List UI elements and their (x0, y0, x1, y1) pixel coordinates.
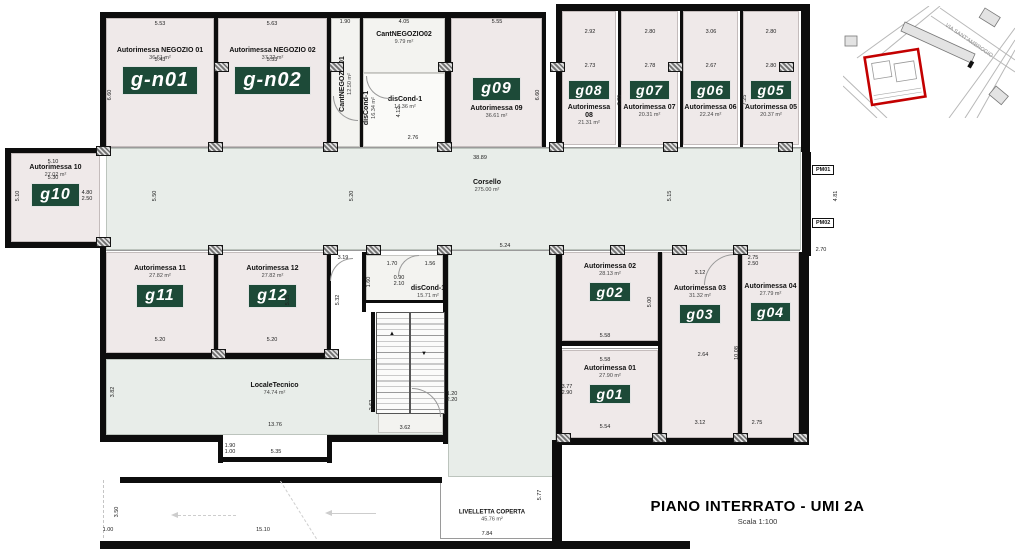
column-marker (663, 142, 678, 152)
dimension-label: 1.70 (387, 261, 398, 267)
room-area: 27.90 m² (599, 373, 621, 379)
column-marker (779, 62, 794, 72)
room-g09: g09 Autorimessa 09 36.61 m² (451, 18, 542, 147)
dimension-label: 5.35 (271, 449, 282, 455)
room-tag-g10: g10 (31, 183, 80, 207)
dimension-label: 1.00 (103, 527, 114, 533)
dimension-label: 5.58 (600, 333, 611, 339)
wall (801, 4, 810, 152)
room-g04: Autorimessa 04 27.79 m² g04 (742, 252, 799, 438)
dimension-label: 2.67 (706, 63, 717, 69)
column-marker (214, 62, 229, 72)
pm01-label: PM01 (812, 165, 834, 175)
wall (556, 4, 562, 150)
column-marker (437, 245, 452, 255)
room-area: 27.82 m² (262, 273, 284, 279)
wall (100, 12, 446, 18)
room-area: 27.79 m² (760, 291, 782, 297)
room-name: Autorimessa 04 (744, 283, 796, 291)
room-gn02: Autorimessa NEGOZIO 02 37.22 m² g-n02 (218, 18, 327, 147)
column-marker (437, 142, 452, 152)
dimension-label: 1.90 (340, 19, 351, 25)
column-marker (672, 245, 687, 255)
column-marker (96, 237, 111, 247)
wall (360, 18, 363, 147)
ramp-arrow-head-icon (171, 512, 178, 518)
wall (446, 12, 546, 18)
dimension-label: 5.50 (152, 191, 158, 202)
dimension-label: 5.77 (537, 490, 543, 501)
dimension-label: 5.53 (267, 57, 278, 63)
room-name: LIVELLETTA COPERTA (459, 510, 525, 517)
dimension-label: 1.60 (366, 277, 372, 288)
column-marker (323, 245, 338, 255)
map-site-outline (865, 49, 926, 105)
room-area: 275.00 m² (473, 187, 501, 193)
livelletta-left-line (440, 480, 441, 538)
room-cant02: CantNEGOZIO02 9.79 m² (363, 18, 445, 73)
ramp-break-line (280, 481, 317, 539)
room-area: 20.31 m² (639, 112, 661, 118)
room-name: Autorimessa 11 (134, 265, 186, 273)
wall (327, 18, 331, 147)
room-name: Autorimessa 05 (745, 104, 797, 112)
dimension-label: 5.20 (349, 191, 355, 202)
dimension-label: 15.10 (256, 527, 270, 533)
wall (5, 242, 105, 248)
room-area: 20.37 m² (760, 112, 782, 118)
drawing-scale: Scala 1:100 (585, 517, 930, 526)
wall (100, 12, 106, 153)
dimension-label: 2.80 (645, 29, 656, 35)
column-marker (668, 62, 683, 72)
room-name: Autorimessa 08 (563, 104, 615, 120)
dimension-label: 2.92 (585, 29, 596, 35)
room-name: CantNEGOZIO02 (376, 31, 432, 39)
dimension-label: 5.32 (335, 295, 341, 306)
wall (445, 12, 451, 147)
dimension-label: 3.62 (400, 425, 411, 431)
column-marker (778, 142, 793, 152)
column-marker (610, 245, 625, 255)
wall (327, 252, 331, 353)
room-tag-g09: g09 (472, 77, 521, 101)
dimension-label: 7.25 (617, 95, 623, 106)
dimension-label: 5.20 (267, 337, 278, 343)
dimension-label: 5.15 (667, 191, 673, 202)
column-marker (324, 349, 339, 359)
room-discond-top-label: disCond-1 14.36 m² (388, 96, 422, 110)
room-area: 74.74 m² (264, 390, 286, 396)
room-name: Autorimessa 12 (246, 265, 298, 273)
room-area: 21.31 m² (578, 120, 600, 126)
room-tag-g02: g02 (589, 282, 630, 302)
dimension-label: 7.84 (482, 531, 493, 537)
room-name: disCond-1 (411, 285, 445, 293)
dimension-label: 2.70 (816, 247, 827, 253)
room-tag-g03: g03 (679, 304, 720, 324)
wall (100, 243, 106, 358)
dimension-label: 2.78 (645, 63, 656, 69)
dimension-label: 6.60 (535, 90, 541, 101)
dimension-label: 3.12 (695, 420, 706, 426)
stair-flight (377, 313, 409, 413)
dimension-label: 3.19 (338, 255, 349, 261)
room-tag-g06: g06 (690, 80, 731, 100)
room-area: 28.13 m² (599, 271, 621, 277)
dimension-label: 4.80 2.50 (82, 190, 93, 202)
dimension-label: 5.63 (267, 21, 278, 27)
room-area: 22.24 m² (700, 112, 722, 118)
dimension-label: 2.80 (766, 63, 777, 69)
stair-direction-up-icon: ▲ (389, 331, 395, 337)
room-name: LocaleTecnico (250, 382, 298, 390)
room-g02: Autorimessa 02 28.13 m² g02 (562, 252, 658, 341)
room-name: Autorimessa NEGOZIO 01 (117, 47, 203, 55)
room-corsello-extension (448, 250, 556, 477)
column-marker (733, 433, 748, 443)
wall (738, 252, 742, 438)
column-marker (793, 433, 808, 443)
wall (214, 252, 218, 353)
room-name: Autorimessa 09 (470, 105, 522, 113)
dimension-label: 5.00 (647, 297, 653, 308)
wall (100, 435, 220, 442)
dimension-label: 2.75 2.50 (748, 255, 759, 267)
wall (799, 252, 809, 444)
dimension-label: 3.77 2.90 (562, 384, 573, 396)
wall (552, 440, 562, 547)
room-tag-g01: g01 (589, 384, 630, 404)
wall (214, 18, 218, 147)
room-tag-g11: g11 (136, 284, 183, 308)
dimension-label: 5.58 (600, 357, 611, 363)
room-discond-mid-label: disCond-1 15.71 m² (411, 285, 445, 299)
dimension-label: 1.90 1.00 (225, 443, 236, 455)
wall (556, 252, 562, 444)
column-marker (550, 62, 565, 72)
room-area: 27.82 m² (149, 273, 171, 279)
dimension-label: 5.20 (155, 337, 166, 343)
g01-top-line (562, 348, 658, 349)
dimension-label: 13.76 (268, 422, 282, 428)
room-area: 36.61 m² (486, 113, 508, 119)
column-marker (556, 433, 571, 443)
dimension-label: 2.75 (752, 420, 763, 426)
room-name: Autorimessa 07 (623, 104, 675, 112)
room-tag-gn02: g-n02 (234, 66, 310, 95)
column-marker (438, 62, 453, 72)
room-area: 45.76 m² (459, 516, 525, 522)
column-marker (208, 142, 223, 152)
dimension-label: 5.54 (600, 424, 611, 430)
room-name: Autorimessa 10 (29, 164, 81, 172)
pm02-label: PM02 (812, 218, 834, 228)
dimension-label: 4.12 (396, 107, 402, 118)
column-marker (323, 142, 338, 152)
room-tag-g04: g04 (750, 302, 791, 322)
room-tag-g07: g07 (629, 80, 670, 100)
stair-direction-down-icon: ▼ (421, 351, 427, 357)
drawing-title: PIANO INTERRATO - UMI 2A (585, 498, 930, 515)
room-name: Autorimessa 03 (674, 285, 726, 293)
column-marker (733, 245, 748, 255)
room-name: disCond-1 (363, 91, 371, 125)
room-tag-g05: g05 (750, 80, 791, 100)
dimension-label: 4.05 (399, 19, 410, 25)
room-area: 9.79 m² (395, 39, 414, 45)
dimension-label: 10.08 (734, 346, 740, 360)
room-tag-gn01: g-n01 (122, 66, 198, 95)
wall (5, 148, 11, 248)
room-name: Autorimessa 02 (584, 263, 636, 271)
room-name: Autorimessa 01 (584, 365, 636, 373)
dimension-label: 5.43 (155, 57, 166, 63)
dimension-label: 5.30 (48, 175, 59, 181)
wall (802, 152, 811, 256)
ramp-arrow-solid (332, 513, 376, 514)
room-livelletta-label: LIVELLETTA COPERTA 45.76 m² (459, 510, 525, 523)
dimension-label: 38.89 (473, 155, 487, 161)
wall (366, 300, 445, 303)
room-name: Autorimessa 06 (684, 104, 736, 112)
dimension-label: 3.50 (114, 507, 120, 518)
wall (740, 11, 743, 147)
dimension-label: 6.60 (107, 90, 113, 101)
column-marker (329, 62, 344, 72)
room-area: 15.71 m² (411, 293, 445, 299)
dimension-label: 2.76 (408, 135, 419, 141)
room-discond-v-label: disCond-1 16.34 m² (363, 91, 377, 125)
dimension-label: 5.10 (48, 159, 59, 165)
wall (330, 435, 445, 442)
room-tag-g08: g08 (568, 80, 609, 100)
ramp-arrow-dashed (178, 515, 236, 516)
column-marker (96, 146, 111, 156)
wall (5, 148, 105, 153)
room-area: 14.36 m² (388, 104, 422, 110)
column-marker (366, 245, 381, 255)
dimension-label: 1.20 2.20 (447, 391, 458, 403)
room-name: disCond-1 (388, 96, 422, 104)
dimension-label: 3.06 (706, 29, 717, 35)
dimension-label: 2.62 (369, 400, 375, 411)
dimension-label: 0.90 2.10 (394, 275, 405, 287)
room-corsello (106, 148, 801, 250)
dimension-label: 5.53 (155, 21, 166, 27)
dimension-label: 5.35 (285, 295, 291, 306)
dimension-label: 2.64 (698, 352, 709, 358)
column-marker (652, 433, 667, 443)
dimension-label: 1.56 (425, 261, 436, 267)
dimension-label: 7.25 (742, 95, 748, 106)
dimension-label: 4.81 (833, 191, 839, 202)
room-area: 16.34 m² (371, 91, 377, 125)
column-marker (208, 245, 223, 255)
title-block: PIANO INTERRATO - UMI 2A Scala 1:100 (585, 498, 930, 526)
dimension-label: 2.80 (766, 29, 777, 35)
wall (680, 11, 683, 147)
door-arc (330, 258, 353, 281)
room-area: 31.32 m² (689, 293, 711, 299)
wall (618, 11, 621, 147)
wall (542, 18, 546, 147)
wall (371, 312, 375, 412)
wall (100, 541, 690, 549)
wall (556, 438, 809, 445)
livelletta-bottom-line (440, 538, 552, 539)
column-marker (549, 245, 564, 255)
column-marker (211, 349, 226, 359)
wall (556, 341, 660, 346)
room-corsello-label: Corsello 275.00 m² (473, 179, 501, 193)
dimension-label: 3.82 (110, 387, 116, 398)
dimension-label: 5.55 (492, 19, 503, 25)
room-name: Autorimessa NEGOZIO 02 (229, 47, 315, 55)
dimension-label: 5.24 (500, 243, 511, 249)
ramp-arrow-head-icon (325, 510, 332, 516)
location-map-inset: VIA SANT'AMBROGIO (843, 6, 1015, 118)
dimension-label: 3.12 (695, 270, 706, 276)
stair-rail (409, 313, 411, 413)
dimension-label: 5.10 (15, 191, 21, 202)
dimension-label: 2.73 (585, 63, 596, 69)
floor-plan: Autorimessa NEGOZIO 01 36.61 m² g-n01 Au… (0, 0, 1024, 555)
room-name: Corsello (473, 179, 501, 187)
wall (100, 358, 106, 442)
wall (556, 4, 810, 11)
column-marker (549, 142, 564, 152)
room-gn01: Autorimessa NEGOZIO 01 36.61 m² g-n01 (106, 18, 214, 147)
wall (218, 457, 332, 462)
